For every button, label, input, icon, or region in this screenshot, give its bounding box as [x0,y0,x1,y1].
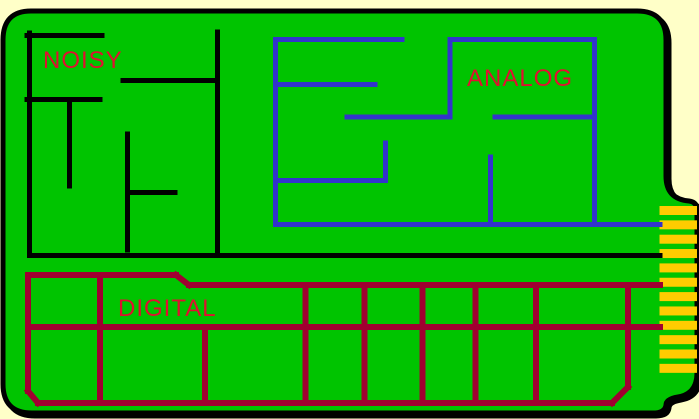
gold-finger [660,220,698,229]
gold-finger [660,278,698,287]
digital-zone-label: DIGITAL [118,295,217,322]
gold-finger [660,350,698,359]
gold-finger [660,263,698,272]
gold-finger [660,364,698,373]
gold-finger [660,249,698,258]
gold-finger [660,292,698,301]
gold-finger [660,206,698,215]
pcb-diagram: NOISY ANALOG DIGITAL [0,0,699,419]
pcb-board-svg: NOISY ANALOG DIGITAL [0,0,699,419]
gold-finger [660,306,698,315]
gold-finger [660,235,698,244]
analog-zone-label: ANALOG [467,65,573,92]
noisy-zone-label: NOISY [43,47,123,74]
gold-finger [660,335,698,344]
gold-finger [660,321,698,330]
